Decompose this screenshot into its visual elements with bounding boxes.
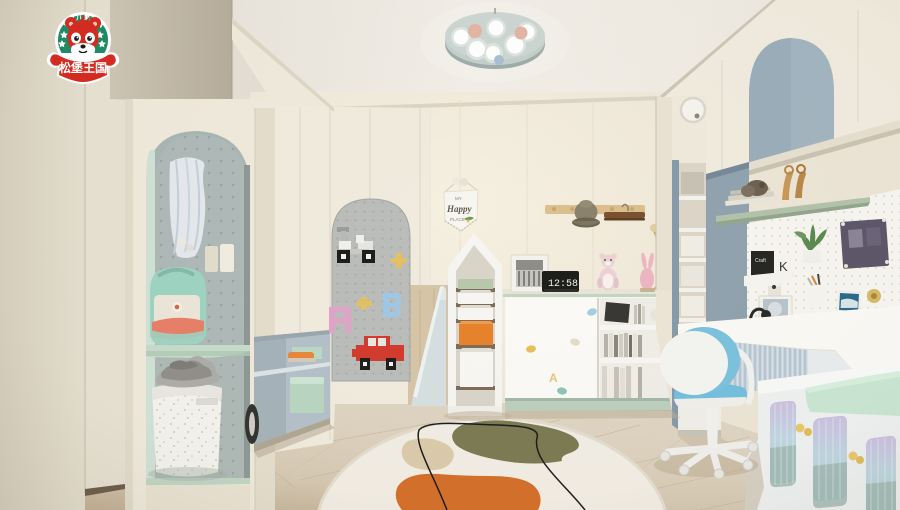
- svg-text:松堡王国: 松堡王国: [59, 60, 107, 75]
